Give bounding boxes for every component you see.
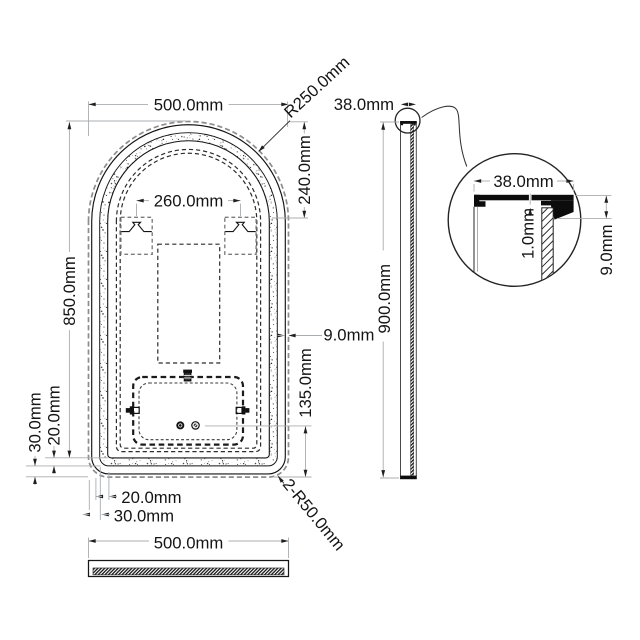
svg-text:20.0mm: 20.0mm — [121, 488, 181, 507]
svg-text:135.0mm: 135.0mm — [296, 348, 315, 418]
svg-text:900.0mm: 900.0mm — [375, 264, 394, 334]
svg-text:38.0mm: 38.0mm — [493, 172, 553, 191]
svg-text:9.0mm: 9.0mm — [323, 326, 374, 345]
svg-text:20.0mm: 20.0mm — [45, 385, 64, 445]
svg-text:500.0mm: 500.0mm — [154, 534, 224, 553]
svg-text:240.0mm: 240.0mm — [295, 135, 314, 205]
svg-text:260.0mm: 260.0mm — [154, 191, 224, 210]
svg-text:500.0mm: 500.0mm — [154, 95, 224, 114]
svg-text:30.0mm: 30.0mm — [26, 392, 45, 452]
svg-text:1.0mm: 1.0mm — [518, 208, 537, 259]
svg-text:9.0mm: 9.0mm — [597, 225, 616, 276]
svg-text:30.0mm: 30.0mm — [114, 506, 174, 525]
svg-text:38.0mm: 38.0mm — [334, 95, 394, 114]
svg-text:850.0mm: 850.0mm — [60, 256, 79, 326]
